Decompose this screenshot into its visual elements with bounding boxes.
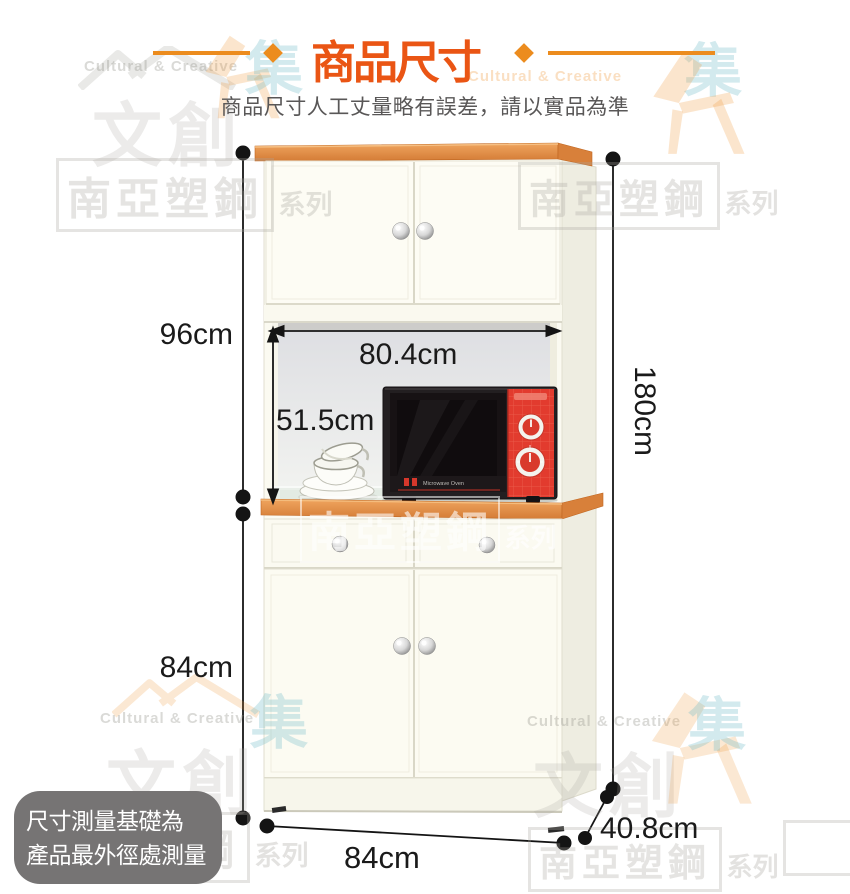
title-left-line <box>153 51 250 55</box>
cabinet-illustration: Microwave Oven <box>0 0 850 894</box>
label-inner-width: 80.4cm <box>359 338 457 372</box>
label-total-width: 84cm <box>344 840 420 876</box>
microwave-label: Microwave Oven <box>423 481 464 487</box>
title-right-line <box>548 51 715 55</box>
page-subtitle: 商品尺寸人工丈量略有誤差，請以實品為準 <box>0 91 850 121</box>
dim-line-96cm <box>236 146 250 504</box>
label-upper-height: 96cm <box>133 318 233 352</box>
note-line-1: 尺寸測量基礎為 <box>26 804 222 838</box>
drawers <box>264 519 562 569</box>
middle-board <box>264 305 562 322</box>
microwave-logo-marks <box>404 478 409 486</box>
microwave-dial-top <box>518 414 544 440</box>
cabinet-side-panel <box>562 159 596 801</box>
dim-line-180cm <box>606 152 620 796</box>
microwave: Microwave Oven <box>382 387 558 505</box>
label-total-height: 180cm <box>627 356 661 466</box>
page-title: 商品尺寸 <box>300 26 490 91</box>
lower-cabinet-doors <box>264 569 562 778</box>
measurement-note: 尺寸測量基礎為 產品最外徑處測量 <box>14 791 222 884</box>
note-line-2: 產品最外徑處測量 <box>26 838 222 872</box>
label-lower-height: 84cm <box>133 651 233 685</box>
cabinet-base <box>264 778 564 833</box>
label-total-depth: 40.8cm <box>600 812 698 846</box>
microwave-control-panel <box>508 389 554 497</box>
product-dimension-infographic: { "header": { "title": "商品尺寸", "subtitle… <box>0 0 850 894</box>
dim-line-84cm-left <box>236 507 250 825</box>
label-inner-height: 51.5cm <box>276 404 374 438</box>
upper-cabinet-doors <box>266 161 560 304</box>
